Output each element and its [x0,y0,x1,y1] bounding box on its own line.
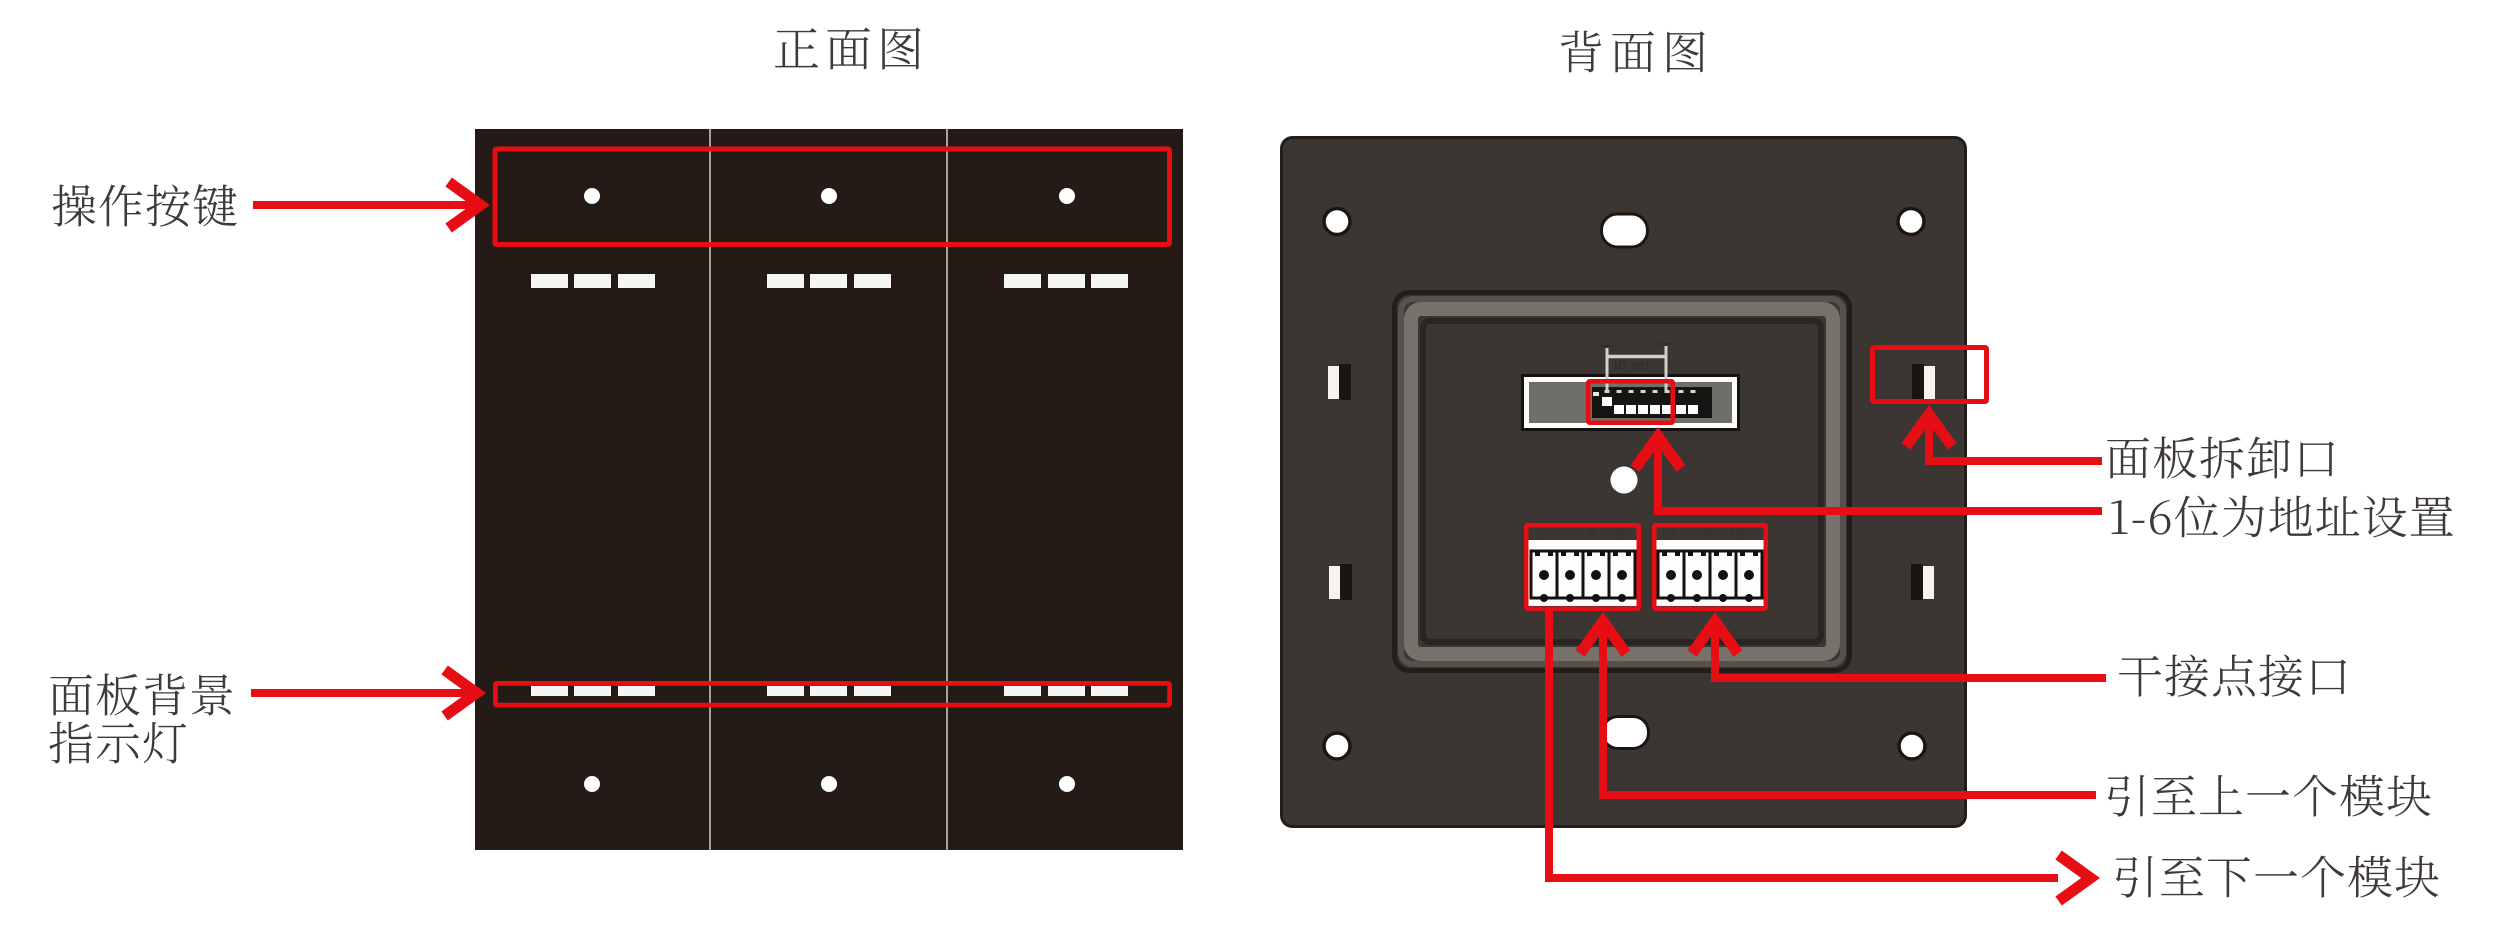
svg-text:ID sel: ID sel [1614,360,1649,372]
